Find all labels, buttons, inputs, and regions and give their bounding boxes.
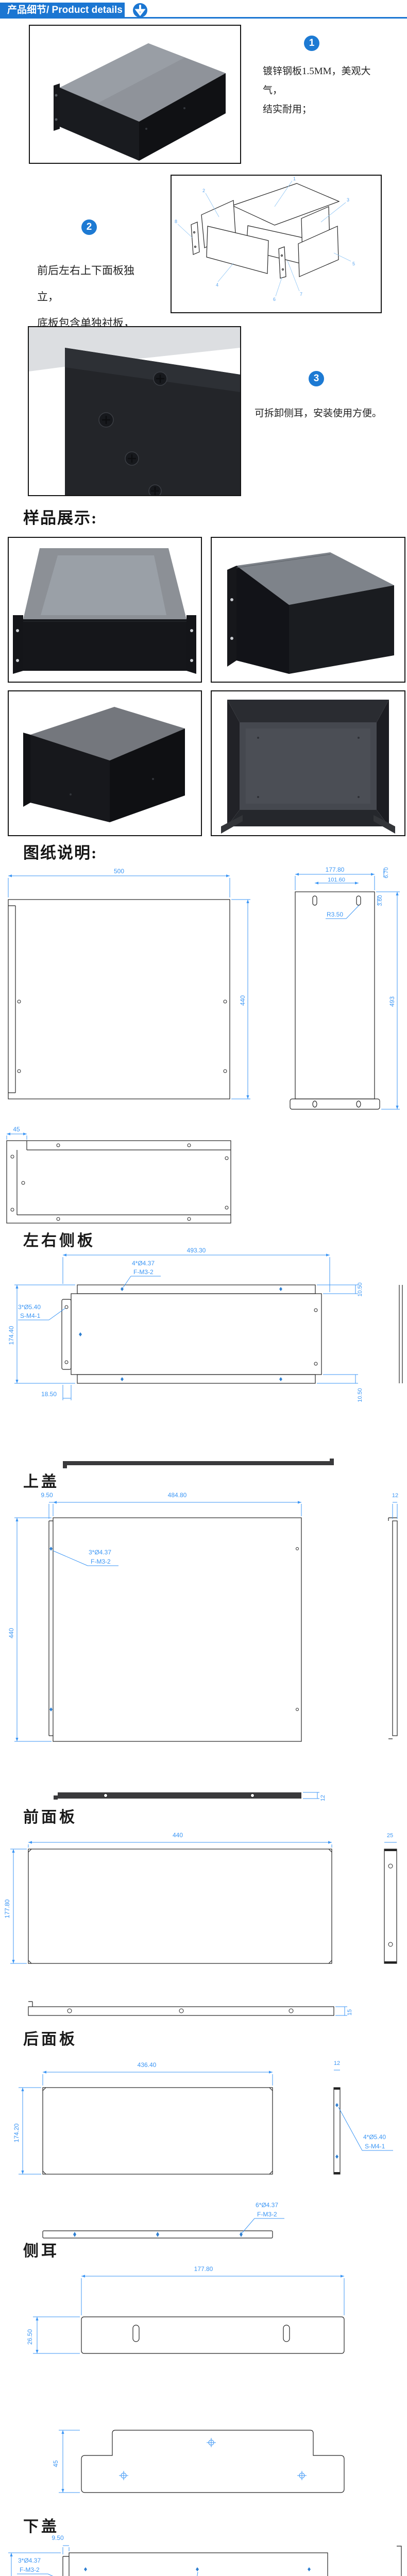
samples-heading: 样品展示:: [23, 505, 97, 528]
dim-slot-radius: R3.50: [327, 911, 343, 918]
sample-photo-1: [8, 537, 202, 683]
callout-2: 2: [202, 188, 205, 193]
ann-tc-type: F-M3-2: [91, 1558, 111, 1565]
dim-tc-thickness: 12: [392, 1493, 398, 1499]
ear-closeup-illustration: [29, 327, 240, 495]
dim-fp-height: 177.80: [4, 1899, 11, 1918]
drawing-bottom-cover: 9.50 3*Ø4.37 F-M3-2 9*Ø5.40 BSO-3.5M3-10…: [2, 2534, 401, 2576]
product-details-page: 产品细节/ Product details 1 镀锌钢板1.5MM，美观大气， …: [0, 0, 407, 2576]
dim-overall-height: 440: [239, 995, 246, 1006]
dim-fp-width: 440: [173, 1832, 183, 1839]
ann-rp-ear-qty: 6*Ø4.37: [256, 2201, 278, 2209]
dim-tc-flange: 9.50: [41, 1492, 53, 1499]
ann-bc-flange-qty: 3*Ø4.37: [18, 2557, 41, 2564]
dim-edge-offset: 6.70: [383, 867, 389, 878]
ann-bc-flange-type: F-M3-2: [20, 2566, 40, 2573]
ann-rp-side-type: S-M4-1: [365, 2143, 385, 2150]
dim-bc-flange: 9.50: [52, 2534, 64, 2541]
dim-overall-side-height: 493: [388, 996, 396, 1007]
feature-1-line-2: 结实耐用；: [263, 100, 389, 119]
dim-sp-height: 174.40: [8, 1326, 15, 1345]
drawing-top-cover: 9.50 484.80 3*Ø4.37 F-M3-2 440 12: [8, 1492, 398, 1741]
feature-1-line-1: 镀锌钢板1.5MM，美观大气，: [263, 62, 389, 100]
feature-1-number-badge: 1: [304, 36, 319, 51]
dim-rp-width: 436.40: [138, 2061, 157, 2069]
callout-6: 6: [273, 297, 276, 302]
dim-tc-width: 484.80: [168, 1492, 187, 1499]
drawings-heading: 图纸说明:: [23, 840, 97, 863]
callout-1: 1: [293, 176, 296, 181]
feature-3-text: 可拆卸侧耳，安装使用方便。: [255, 406, 388, 421]
callout-4: 4: [216, 282, 218, 287]
dim-overall-width: 500: [114, 868, 124, 875]
drawing-side-ear: 177.80 26.50 45: [26, 2265, 344, 2493]
drawing-side-panel: 493.30 4*Ø4.37 F-M3-2 3*Ø5.40 S-M4-1 174…: [8, 1247, 402, 1402]
feature-3-line-1: 可拆卸侧耳，安装使用方便。: [255, 406, 388, 421]
exploded-view-diagram: 1 2 3 4 5 6 7 8: [171, 175, 382, 313]
dim-sp-inset: 18.50: [41, 1391, 57, 1398]
ann-sp-side-type: S-M4-1: [20, 1312, 41, 1319]
dim-slot-offset: 3.60: [377, 895, 383, 906]
ann-rp-side-qty: 4*Ø5.40: [363, 2133, 386, 2141]
dim-slot-span: 101.60: [328, 877, 345, 883]
drawing-front-panel: 440 25 177.80 15: [4, 1832, 397, 2015]
dim-se-height: 26.50: [26, 2329, 33, 2345]
product-photo-ear-closeup: [28, 326, 241, 496]
feature-3-number-badge: 3: [309, 371, 324, 386]
product-photo-main: [29, 25, 241, 164]
feature-2-number-badge: 2: [81, 219, 97, 235]
dim-overall-side-width: 177.80: [326, 866, 345, 873]
feature-1-text: 镀锌钢板1.5MM，美观大气， 结实耐用；: [263, 62, 389, 119]
dim-tc-depth: 440: [8, 1628, 15, 1638]
dim-fp-flange: 15: [347, 2009, 353, 2015]
sample-photo-3: [8, 690, 202, 836]
dim-sp-tab-bottom: 10.50: [357, 1388, 363, 1402]
drawing-rear-panel: 436.40 12 174.20 4*Ø5.40 S-M4-1 6*Ø4.37 …: [13, 2060, 393, 2238]
callout-8: 8: [175, 219, 177, 224]
sample-photo-4: [211, 690, 405, 836]
profile-strip-front-panel: 12: [54, 1792, 326, 1801]
dim-front-flange: 45: [13, 1126, 20, 1133]
profile-strip-side-panel: [63, 1459, 334, 1468]
technical-drawings: 500 440 177.80 101.60 6.70 3.60 R3.50: [0, 866, 407, 2576]
dim-se-bend: 45: [52, 2460, 59, 2467]
section-title-banner: 产品细节/ Product details: [0, 3, 125, 18]
feature-2-line-1: 前后左右上下面板独立，: [37, 258, 156, 310]
sample-photo-2: [211, 537, 405, 683]
callout-5: 5: [352, 261, 355, 266]
dim-rp-thickness: 12: [334, 2060, 340, 2066]
header-divider: [0, 17, 407, 19]
callout-7: 7: [300, 292, 302, 297]
callout-3: 3: [347, 197, 349, 202]
chassis-illustration-front-iso: [30, 26, 240, 163]
ann-tc-qty: 3*Ø4.37: [89, 1549, 111, 1556]
down-arrow-icon: [132, 2, 148, 19]
dim-fp-profile: 12: [320, 1795, 326, 1801]
dim-sp-tab-top: 10.50: [357, 1282, 363, 1297]
ann-sp-side-qty: 3*Ø5.40: [18, 1303, 41, 1311]
drawing-overall: 500 440 177.80 101.60 6.70 3.60 R3.50: [7, 866, 400, 1223]
dim-sp-width: 493.30: [187, 1247, 206, 1254]
ann-rp-ear-type: F-M3-2: [257, 2211, 277, 2218]
dim-se-width: 177.80: [194, 2265, 213, 2273]
ann-sp-top-type: F-M3-2: [133, 1268, 154, 1276]
dim-fp-side-width: 25: [387, 1833, 393, 1839]
dim-rp-height: 174.20: [13, 2123, 20, 2142]
ann-sp-top-qty: 4*Ø4.37: [132, 1260, 155, 1267]
exploded-panels: [191, 183, 339, 278]
